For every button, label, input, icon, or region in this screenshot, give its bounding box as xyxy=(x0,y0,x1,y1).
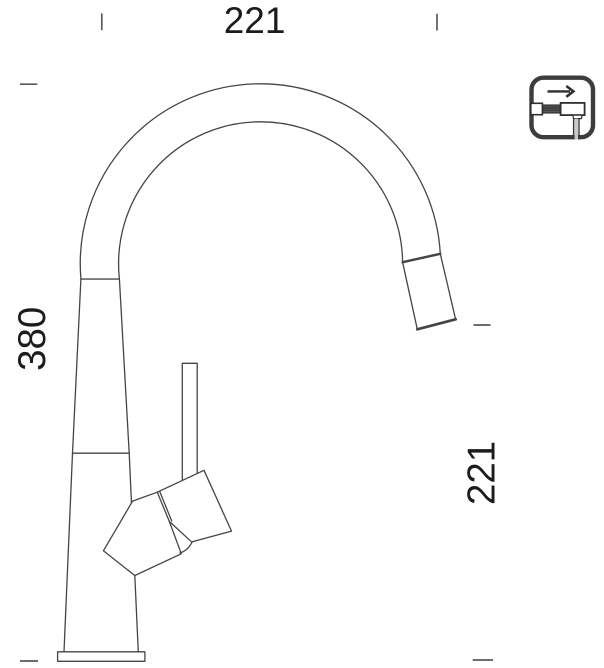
svg-text:380: 380 xyxy=(11,307,54,371)
svg-text:221: 221 xyxy=(460,441,503,505)
svg-text:221: 221 xyxy=(224,0,286,41)
